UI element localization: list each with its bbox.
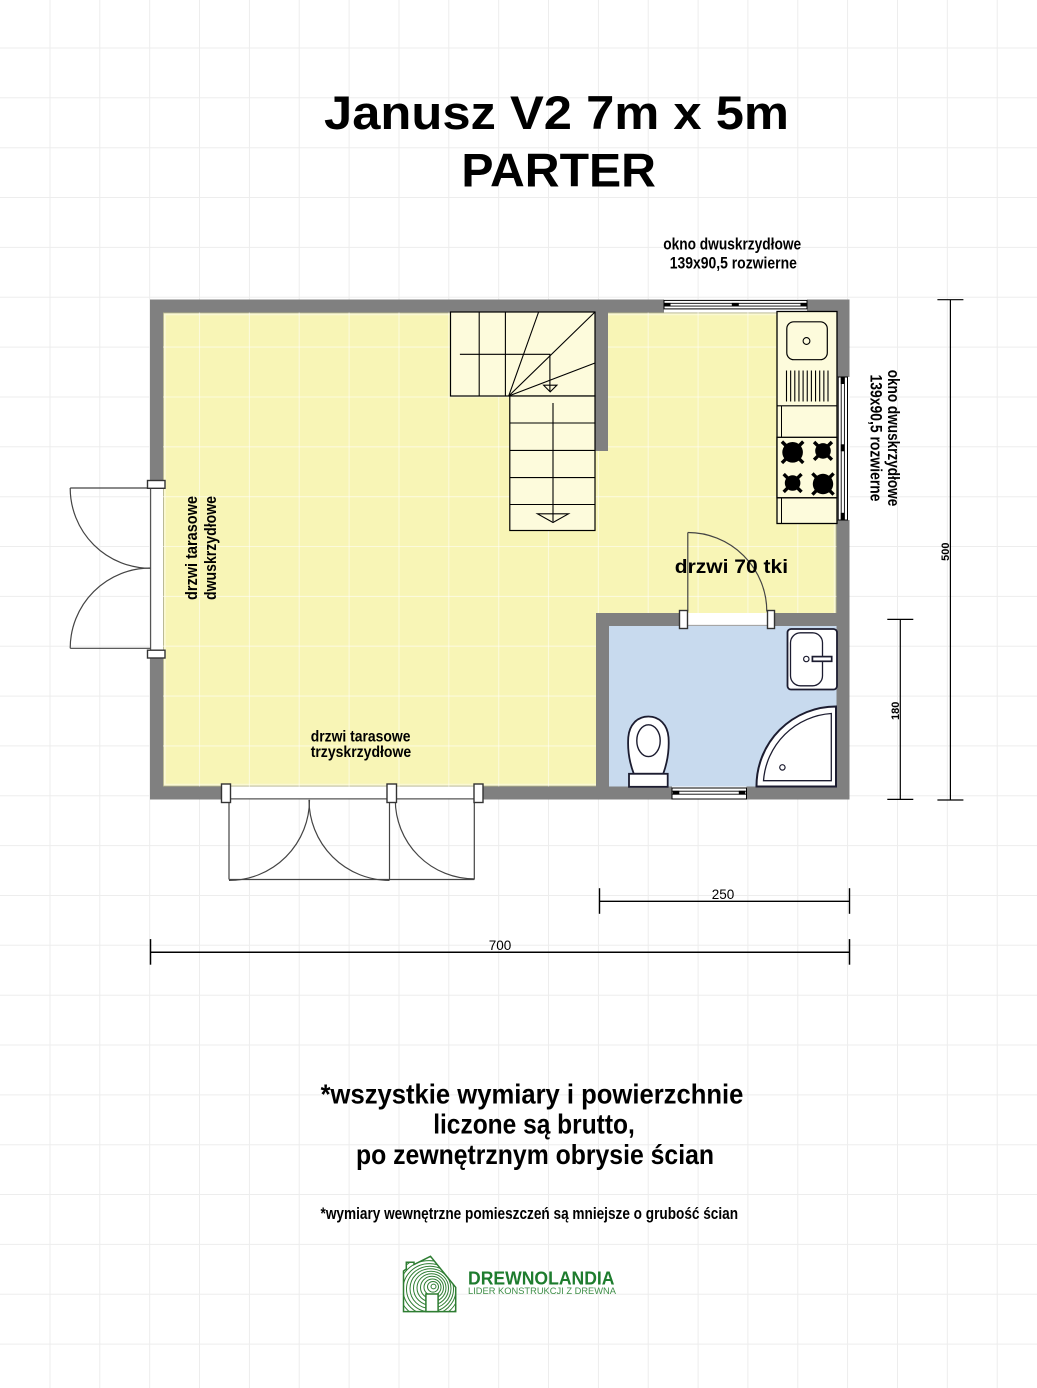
- svg-text:dwuskrzydłowe: dwuskrzydłowe: [202, 496, 220, 600]
- svg-text:700: 700: [489, 938, 512, 953]
- svg-text:*wymiary wewnętrzne pomieszcze: *wymiary wewnętrzne pomieszczeń są mniej…: [321, 1204, 739, 1223]
- svg-text:500: 500: [940, 543, 952, 561]
- svg-text:drzwi tarasowe: drzwi tarasowe: [311, 729, 411, 746]
- svg-text:*wszystkie wymiary i powierzch: *wszystkie wymiary i powierzchnie: [321, 1078, 744, 1109]
- svg-text:139x90,5 rozwierne: 139x90,5 rozwierne: [867, 375, 885, 502]
- svg-text:180: 180: [890, 702, 902, 720]
- svg-text:LIDER KONSTRUKCJI Z DREWNA: LIDER KONSTRUKCJI Z DREWNA: [468, 1286, 617, 1297]
- svg-text:okno dwuskrzydłowe: okno dwuskrzydłowe: [663, 236, 801, 254]
- svg-text:liczone są brutto,: liczone są brutto,: [433, 1109, 635, 1140]
- svg-text:139x90,5 rozwierne: 139x90,5 rozwierne: [670, 254, 797, 272]
- svg-text:po zewnętrznym obrysie ścian: po zewnętrznym obrysie ścian: [356, 1139, 714, 1170]
- svg-text:drzwi 70 tki: drzwi 70 tki: [675, 556, 788, 578]
- svg-text:Janusz V2 7m x 5m: Janusz V2 7m x 5m: [324, 86, 789, 139]
- svg-text:trzyskrzydłowe: trzyskrzydłowe: [311, 744, 412, 761]
- svg-text:drzwi tarasowe: drzwi tarasowe: [183, 496, 201, 600]
- svg-text:250: 250: [712, 887, 735, 902]
- svg-text:PARTER: PARTER: [461, 144, 656, 197]
- svg-text:okno dwuskrzydłowe: okno dwuskrzydłowe: [884, 370, 902, 507]
